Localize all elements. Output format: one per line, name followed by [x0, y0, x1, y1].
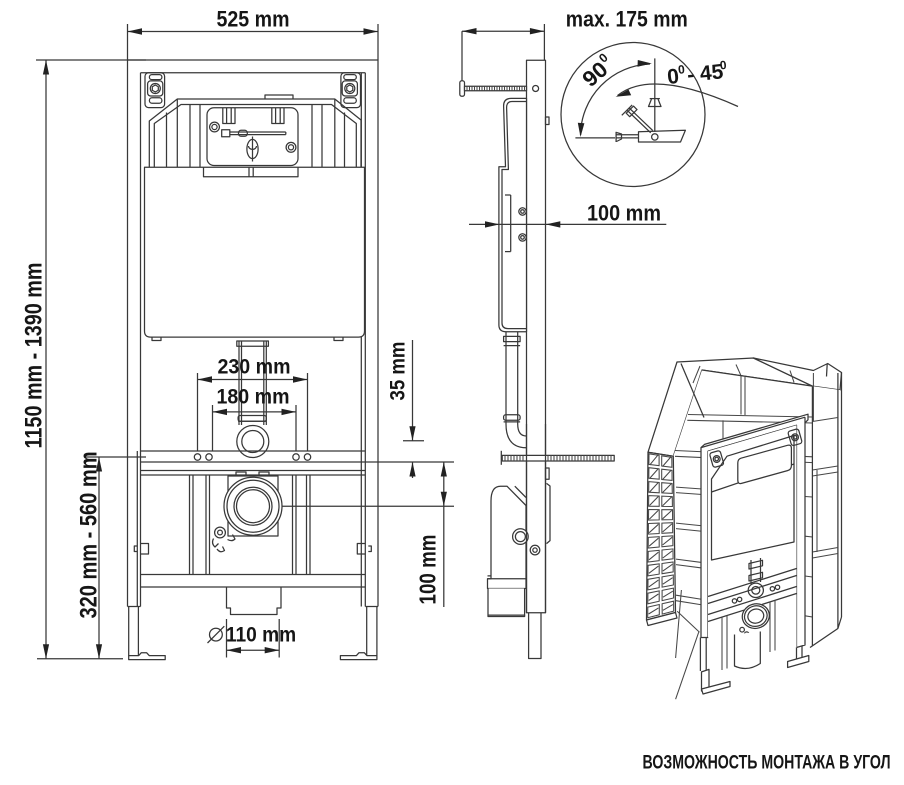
svg-text:230 mm: 230 mm: [218, 355, 291, 378]
svg-text:100 mm: 100 mm: [415, 535, 441, 605]
svg-text:110 mm: 110 mm: [226, 624, 296, 647]
svg-text:35 mm: 35 mm: [387, 342, 410, 401]
svg-text:1150 mm - 1390 mm: 1150 mm - 1390 mm: [21, 263, 48, 449]
svg-text:180 mm: 180 mm: [217, 385, 290, 408]
svg-text:max. 175 mm: max. 175 mm: [566, 7, 688, 32]
svg-text:ВОЗМОЖНОСТЬ МОНТАЖА В УГОЛ: ВОЗМОЖНОСТЬ МОНТАЖА В УГОЛ: [643, 753, 891, 774]
svg-text:100 mm: 100 mm: [587, 201, 661, 226]
svg-text:525 mm: 525 mm: [217, 7, 290, 32]
